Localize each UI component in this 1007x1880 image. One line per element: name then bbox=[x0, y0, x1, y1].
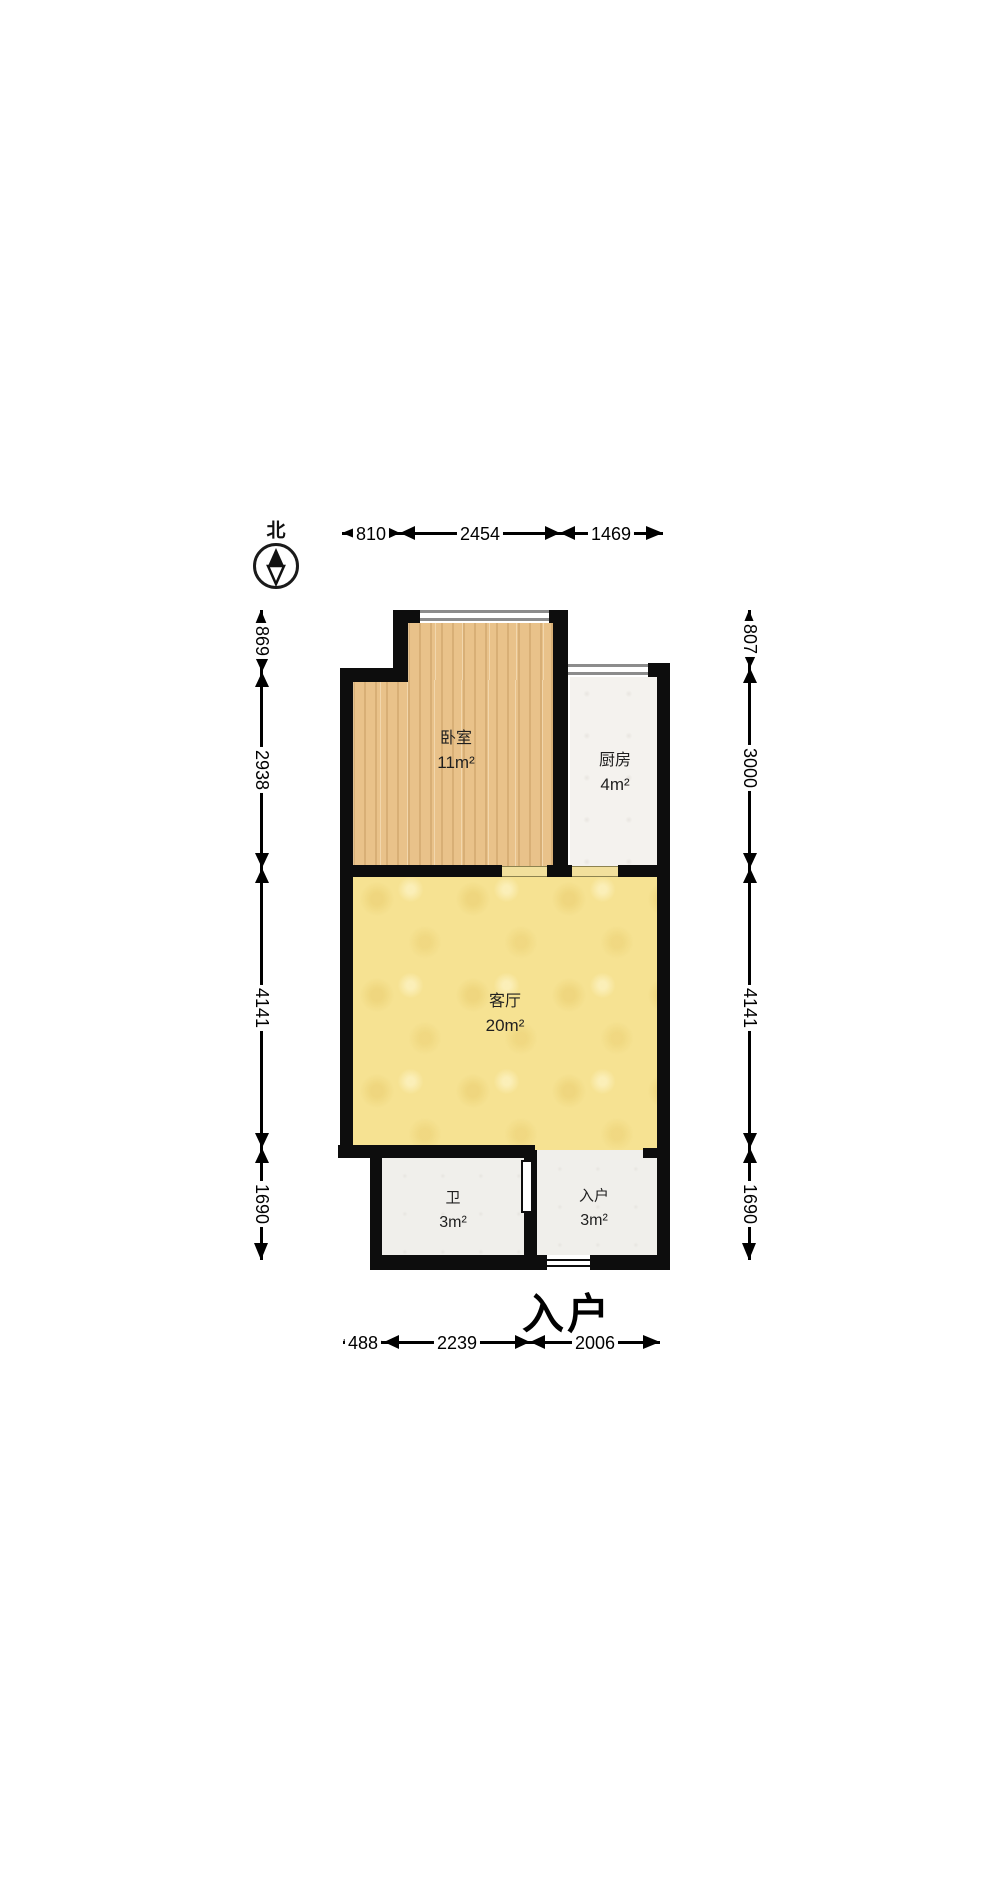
bedroom-floor bbox=[408, 622, 553, 684]
wall bbox=[657, 663, 670, 1270]
bedroom-door-sill bbox=[502, 866, 547, 877]
living-room-floor bbox=[353, 875, 657, 1150]
dim-tick bbox=[743, 653, 757, 683]
bedroom-floor bbox=[353, 680, 553, 867]
wall bbox=[643, 1148, 657, 1158]
dim-tick bbox=[255, 657, 269, 687]
kitchen-floor bbox=[570, 677, 657, 867]
kitchen-area: 4m² bbox=[600, 775, 629, 795]
wall bbox=[553, 610, 568, 877]
window-pane-line bbox=[568, 672, 650, 675]
dim-arrow bbox=[254, 1243, 268, 1260]
dim-tick bbox=[255, 1133, 269, 1163]
dim-label: 869 bbox=[252, 623, 272, 659]
bathroom-area: 3m² bbox=[439, 1214, 467, 1232]
window-pane-line bbox=[420, 610, 549, 613]
wall bbox=[340, 668, 353, 1157]
kitchen-door-sill bbox=[572, 866, 618, 877]
wall bbox=[590, 1255, 670, 1270]
dim-arrow bbox=[742, 1243, 756, 1260]
living-room-area: 20m² bbox=[486, 1016, 525, 1036]
dim-tick bbox=[545, 526, 575, 540]
dim-tick bbox=[743, 1133, 757, 1163]
wall bbox=[338, 1145, 535, 1158]
dim-tick bbox=[515, 1335, 545, 1349]
dim-label: 1690 bbox=[252, 1181, 272, 1227]
wall bbox=[618, 865, 657, 877]
wall bbox=[547, 865, 572, 877]
dim-label: 1690 bbox=[740, 1181, 760, 1227]
compass-needle-icon bbox=[253, 543, 299, 589]
threshold-line bbox=[547, 1259, 590, 1261]
dim-arrow bbox=[643, 1335, 660, 1349]
dim-label: 3000 bbox=[740, 745, 760, 791]
threshold-line bbox=[547, 1265, 590, 1267]
north-label: 北 bbox=[266, 516, 285, 543]
bedroom-label: 卧室 bbox=[440, 724, 472, 748]
dim-label: 1469 bbox=[588, 524, 634, 544]
dim-tick bbox=[255, 853, 269, 883]
kitchen-window bbox=[568, 663, 650, 677]
dim-label: 2938 bbox=[252, 747, 272, 793]
dim-label: 4141 bbox=[252, 985, 272, 1031]
dim-label: 4141 bbox=[740, 985, 760, 1031]
dim-label: 2454 bbox=[457, 524, 503, 544]
kitchen-label: 厨房 bbox=[599, 746, 631, 770]
dim-label: 488 bbox=[345, 1333, 381, 1353]
dim-tick bbox=[385, 526, 415, 540]
entry-area: 3m² bbox=[580, 1212, 608, 1230]
dim-label: 2006 bbox=[572, 1333, 618, 1353]
window-pane-line bbox=[568, 664, 650, 667]
wall bbox=[340, 865, 502, 877]
wall bbox=[370, 1157, 382, 1270]
entry-door-threshold bbox=[547, 1255, 590, 1270]
entry-label: 入户 bbox=[579, 1185, 609, 1206]
dim-arrow bbox=[646, 526, 663, 540]
dim-label: 807 bbox=[740, 621, 760, 657]
dim-label: 2239 bbox=[434, 1333, 480, 1353]
bedroom-window bbox=[420, 610, 549, 623]
bathroom-door bbox=[521, 1160, 533, 1213]
window-pane-line bbox=[420, 618, 549, 621]
dim-tick bbox=[743, 853, 757, 883]
floor-plan-canvas: 北 卧室 11m² 厨房 bbox=[0, 0, 1007, 1880]
living-room-label: 客厅 bbox=[489, 987, 521, 1011]
dim-label: 810 bbox=[353, 524, 389, 544]
wall bbox=[370, 1255, 547, 1270]
bedroom-area: 11m² bbox=[437, 753, 474, 773]
bathroom-label: 卫 bbox=[445, 1187, 460, 1208]
